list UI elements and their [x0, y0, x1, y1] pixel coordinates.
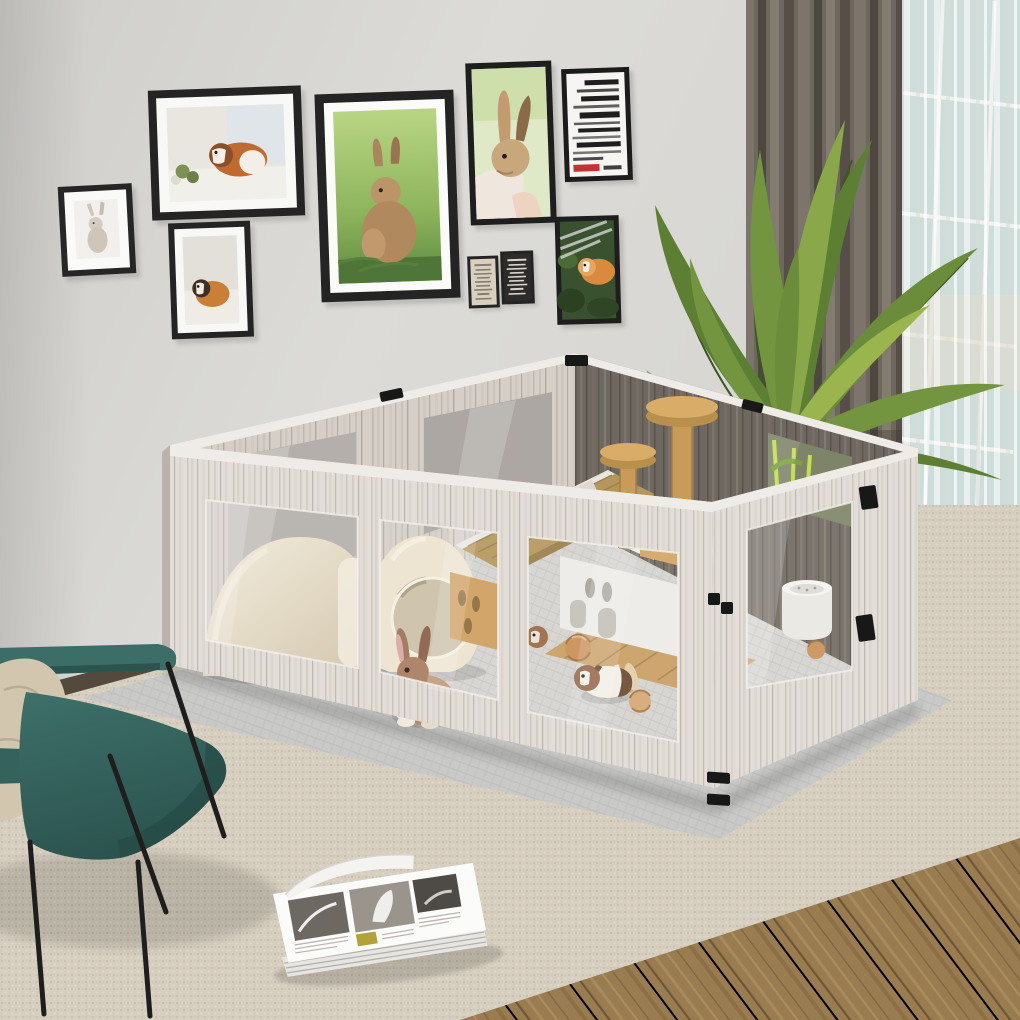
- top-clip: [565, 355, 588, 366]
- panel-hinge: [859, 485, 879, 510]
- guineapig-portrait-photo: [182, 235, 239, 325]
- wall-frame-bunny-grass: [314, 89, 464, 307]
- pen-left-edge-face: [162, 445, 170, 670]
- rabbit-held-photo: [471, 67, 550, 219]
- wall-frame-guineapig-portrait: [168, 220, 258, 344]
- wall-frame-typography-poster: [561, 67, 637, 186]
- photo-scene: Lifestyle product photo: a large whitewa…: [0, 0, 1020, 1020]
- guineapig-foliage-photo: [555, 220, 620, 320]
- door-latch: [708, 593, 720, 605]
- wall-frame-mini-poster-light: [467, 255, 503, 311]
- door-hinge-bar: [707, 771, 730, 784]
- panel-hinge: [855, 614, 875, 642]
- wall-frame-guineapig-windowsill: [148, 85, 310, 225]
- guineapig-windowsill-photo: [166, 104, 286, 202]
- bunny-grass-photo: [333, 108, 442, 283]
- wall-frame-rabbit-small: [58, 183, 141, 282]
- door-latch: [721, 602, 733, 614]
- wall-frame-rabbit-held: [465, 60, 561, 230]
- wall-frame-guineapig-foliage: [555, 215, 626, 329]
- wall-frame-mini-poster-dark: [500, 250, 538, 307]
- sheer-curtain: [898, 0, 1020, 505]
- door-hinge-bar: [707, 793, 730, 806]
